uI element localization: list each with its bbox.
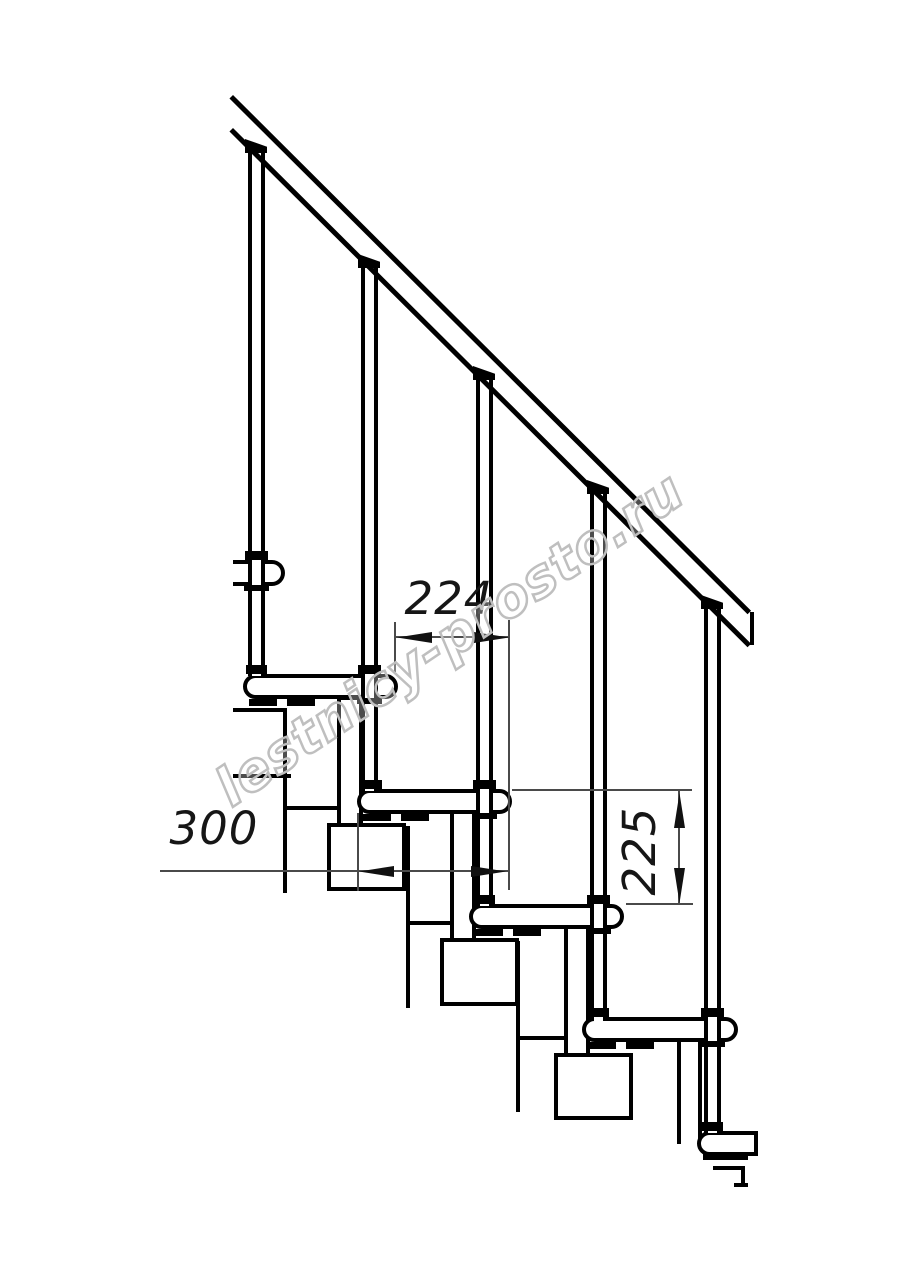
dimension-224-arrow-left	[397, 632, 432, 643]
spine-cut-line-top	[233, 708, 287, 712]
site-watermark: lestnicy-prosto.ru	[204, 460, 696, 821]
baluster-3-foot-collar	[474, 895, 495, 904]
spine-module1-rear-shelf	[283, 806, 339, 810]
baluster-1-foot-collar	[246, 665, 267, 674]
dimension-224-extension-left	[394, 622, 396, 672]
baluster-3-pass-collar-top	[473, 780, 496, 789]
tread-5-foot	[626, 1042, 654, 1049]
spine-module2-box	[440, 938, 519, 1006]
baluster-4-foot-collar	[588, 1008, 609, 1017]
baluster-3-pass-collar-bottom	[472, 813, 497, 819]
dimension-225-arrow-up	[674, 793, 685, 828]
dimension-224-label: 224	[403, 576, 495, 622]
dimension-300-line	[160, 870, 510, 872]
baluster-5	[704, 605, 721, 1133]
dimension-225-extension-bottom	[626, 903, 693, 905]
baluster-4-pass-collar-bottom	[586, 928, 611, 934]
tread-4-foot	[513, 929, 541, 936]
baluster-4-pass-collar-top	[587, 895, 610, 904]
dimension-225-extension-top	[512, 789, 692, 791]
baluster-5-foot-collar	[702, 1122, 723, 1131]
spine-module2-rear-shelf	[406, 921, 456, 925]
bottom-cut-line-h	[713, 1166, 744, 1170]
bottom-cut-tick	[734, 1183, 748, 1187]
handrail-end-cut	[750, 612, 754, 645]
spine-module1-rear-edge	[283, 710, 287, 893]
spine-module1-box	[327, 823, 406, 891]
tread-2-foot	[287, 699, 315, 706]
baluster-1	[248, 150, 265, 676]
tread-3-foot	[401, 814, 429, 821]
spine-module2-rear-edge	[406, 826, 410, 1008]
baluster-2-foot-collar	[361, 780, 382, 789]
dimension-225-arrow-down	[674, 868, 685, 903]
technical-drawing-canvas: 224 300 225 lestnicy-prosto.ru	[0, 0, 914, 1280]
baluster-1-pass-collar-top	[245, 551, 268, 560]
tread-2-foot	[249, 699, 277, 706]
baluster-2-pass-collar-top	[358, 665, 381, 674]
baluster-2-pass-collar-bottom	[357, 698, 382, 704]
baluster-5-pass-collar-top	[701, 1008, 724, 1017]
baluster-5-pass-collar-bottom	[700, 1041, 725, 1047]
tread-3-foot	[363, 814, 391, 821]
dimension-300-label: 300	[168, 806, 260, 852]
spine-module3-box	[554, 1053, 633, 1120]
tread-5-foot	[588, 1042, 616, 1049]
tread-4-foot	[475, 929, 503, 936]
dimension-300-extension-left	[357, 813, 359, 891]
baluster-4	[590, 491, 607, 1021]
tread-6-foot	[703, 1152, 748, 1160]
dimension-224-extension-right	[508, 620, 510, 890]
spine-module4-left-edge	[677, 1040, 681, 1144]
baluster-1-pass-collar-bottom	[244, 585, 269, 591]
spine-module3-rear-shelf	[516, 1036, 568, 1040]
dimension-225-label: 225	[617, 801, 663, 901]
baluster-2	[361, 264, 378, 791]
